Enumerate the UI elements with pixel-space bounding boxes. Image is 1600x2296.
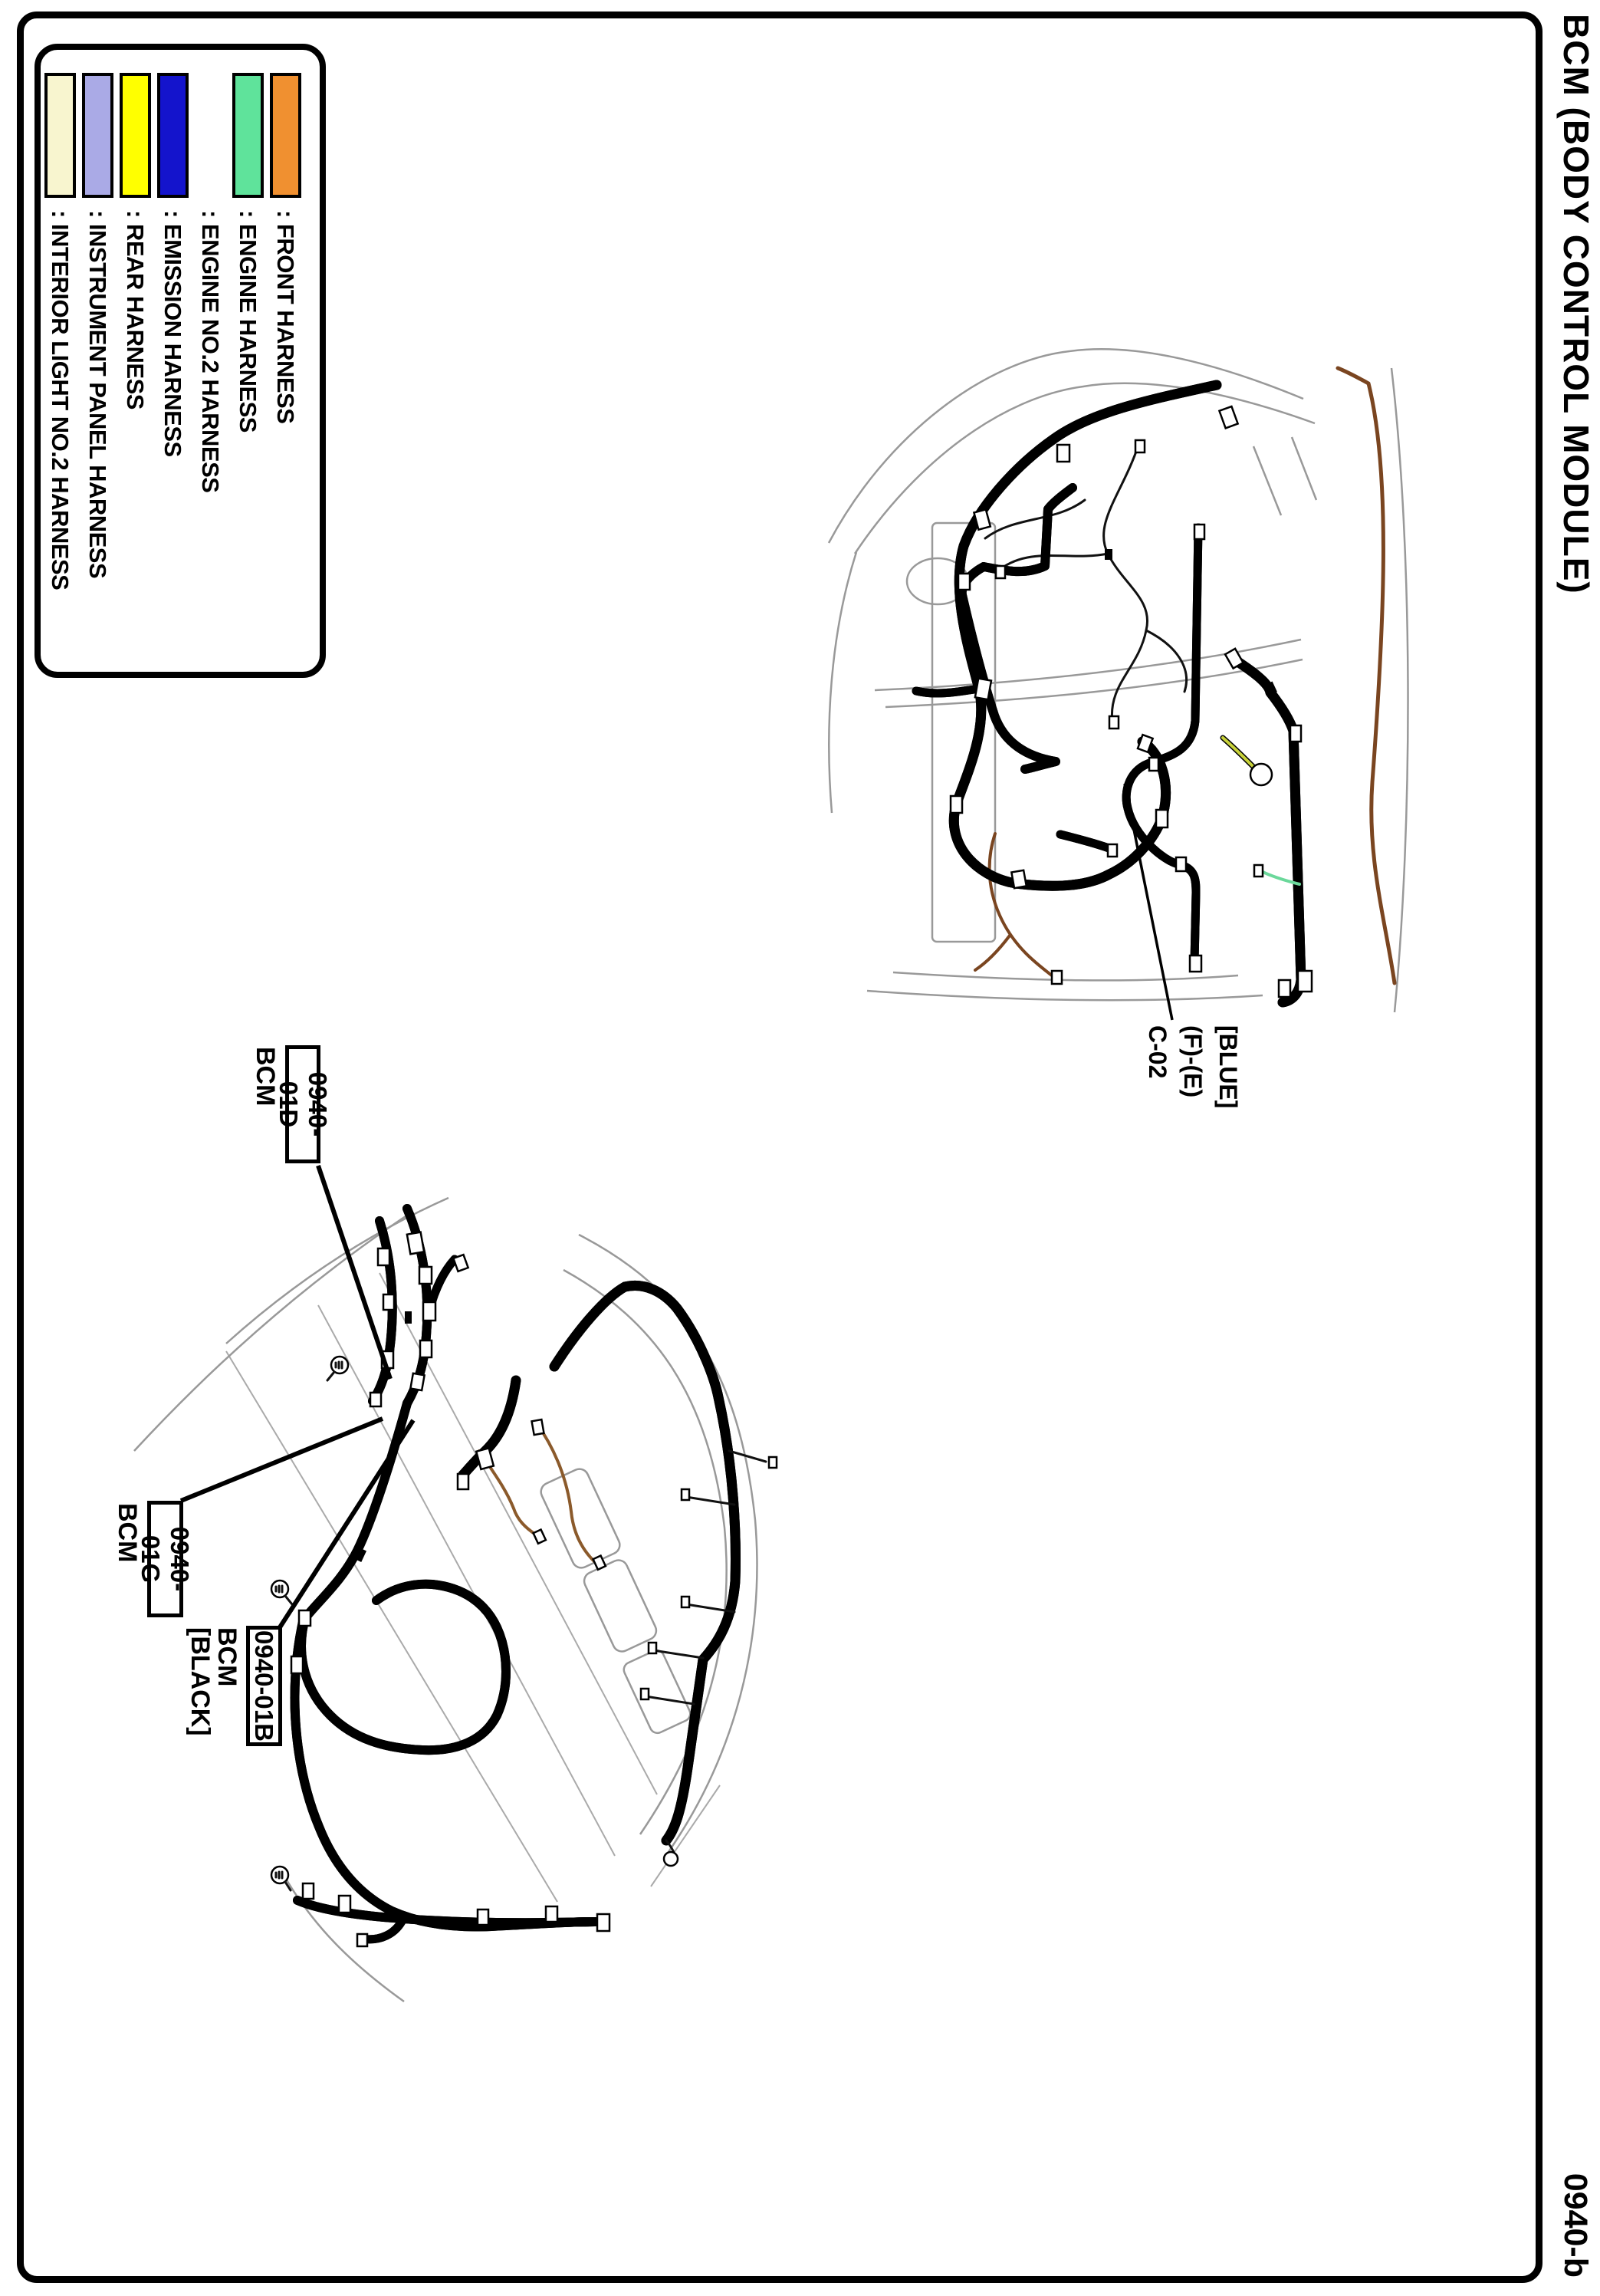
car-body-outline — [134, 1198, 757, 2002]
legend-label: : EMISSION HARNESS — [159, 210, 187, 457]
legend-row: : ENGINE NO.2 HARNESS — [192, 50, 229, 672]
connector-callout: [BLUE] (F)-(E) C-02 — [1140, 1025, 1246, 1108]
ground-bolt-icon — [327, 1357, 348, 1380]
legend-row: : ENGINE HARNESS — [229, 50, 267, 672]
engine-bay-connectors — [951, 406, 1312, 997]
callout-box-0940-01G: 0940-01G — [147, 1501, 183, 1617]
legend-label: : INTERIOR LIGHT NO.2 HARNESS — [47, 210, 74, 590]
connector-link-label: (F)-(E) — [1175, 1025, 1211, 1108]
callout-name-bcm: BCM — [250, 1047, 280, 1106]
callout-name-bcm: BCM — [112, 1503, 142, 1562]
manual-page: BCM (BODY CONTROL MODULE) 0940-b : FRONT… — [0, 0, 1600, 2296]
interior-light-no2-harness-path — [554, 1285, 777, 1866]
engine-bay-brown-harness-path — [975, 368, 1395, 983]
legend-color-swatch — [270, 73, 301, 198]
rear-harness-path — [295, 1209, 595, 1939]
legend-color-swatch — [82, 73, 113, 198]
legend-row: : FRONT HARNESS — [267, 50, 304, 672]
legend-row: : INTERIOR LIGHT NO.2 HARNESS — [41, 50, 79, 672]
front-harness-path — [916, 385, 1301, 1002]
callout-code: 0940-01G — [136, 1505, 195, 1613]
engine-bay-harness-diagram — [803, 322, 1416, 1028]
pigtail-wire — [1223, 738, 1272, 785]
ground-bolt-icon — [271, 1581, 292, 1604]
harness-color-legend: : FRONT HARNESS: ENGINE HARNESS: ENGINE … — [34, 44, 326, 678]
legend-label: : ENGINE HARNESS — [235, 210, 262, 433]
legend-label: : INSTRUMENT PANEL HARNESS — [84, 210, 112, 578]
legend-label: : FRONT HARNESS — [272, 210, 300, 423]
ground-bolt-icon — [271, 1867, 291, 1890]
callout-variant-black: [BLACK] — [185, 1627, 215, 1736]
page-number: 0940-b — [1556, 2117, 1594, 2278]
legend-color-swatch — [157, 73, 189, 198]
body-harness-diagram — [97, 1120, 810, 2040]
callout-code: 0940-01D — [274, 1049, 332, 1160]
callout-box-0940-01B: 0940-01B — [246, 1626, 282, 1746]
car-front-outline — [829, 349, 1408, 1012]
legend-label: : REAR HARNESS — [122, 210, 149, 410]
legend-color-swatch — [44, 73, 76, 198]
callout-code: 0940-01B — [250, 1630, 279, 1742]
emission-harness-path — [1060, 528, 1198, 962]
callout-box-0940-01D: 0940-01D — [285, 1045, 320, 1163]
legend-row: : EMISSION HARNESS — [154, 50, 192, 672]
legend-row: : REAR HARNESS — [117, 50, 154, 672]
legend-color-swatch — [232, 73, 264, 198]
page-title: BCM (BODY CONTROL MODULE) — [1556, 14, 1597, 594]
connector-color-label: [BLUE] — [1211, 1025, 1246, 1108]
legend-label: : ENGINE NO.2 HARNESS — [197, 210, 225, 492]
legend-row: : INSTRUMENT PANEL HARNESS — [79, 50, 117, 672]
legend-color-swatch — [120, 73, 151, 198]
connector-code-label: C-02 — [1140, 1025, 1175, 1108]
callout-name-bcm: BCM — [212, 1627, 241, 1686]
